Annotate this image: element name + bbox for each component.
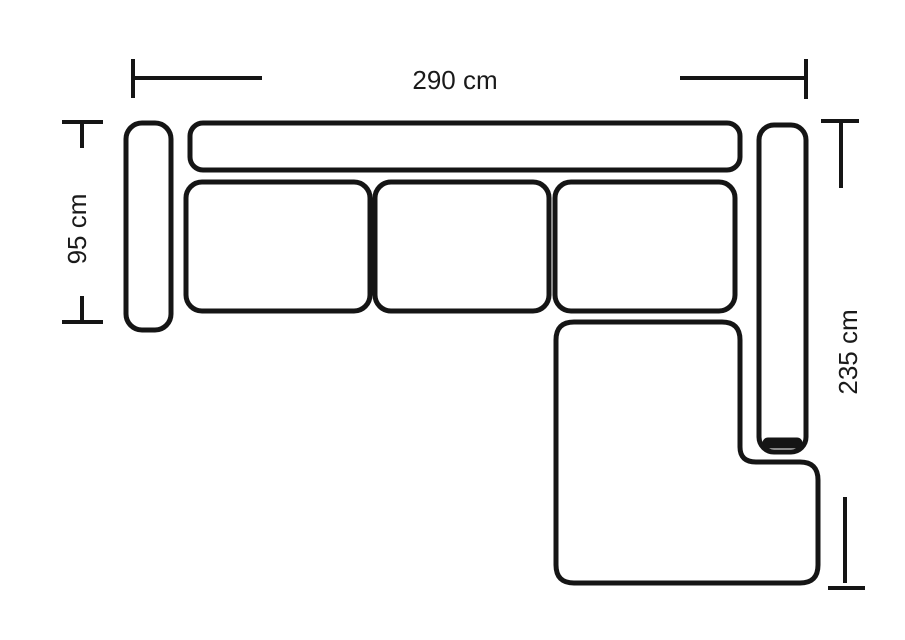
seat-cushion-1: [186, 182, 370, 311]
left-armrest: [126, 123, 171, 330]
corner-sofa-dimension-diagram: 290 cm 95 cm 235 cm: [0, 0, 905, 640]
dim-length-label: 235 cm: [833, 309, 863, 394]
dimension-length: 235 cm: [821, 121, 865, 588]
sofa-outline: [126, 123, 818, 583]
dimension-depth: 95 cm: [62, 122, 103, 322]
backrest: [190, 123, 740, 170]
right-armrest: [759, 125, 806, 452]
dimension-width: 290 cm: [133, 59, 806, 99]
seat-cushion-3: [555, 182, 735, 311]
dim-depth-label: 95 cm: [62, 194, 92, 265]
seat-cushion-2: [375, 182, 549, 311]
dim-width-label: 290 cm: [412, 65, 497, 95]
